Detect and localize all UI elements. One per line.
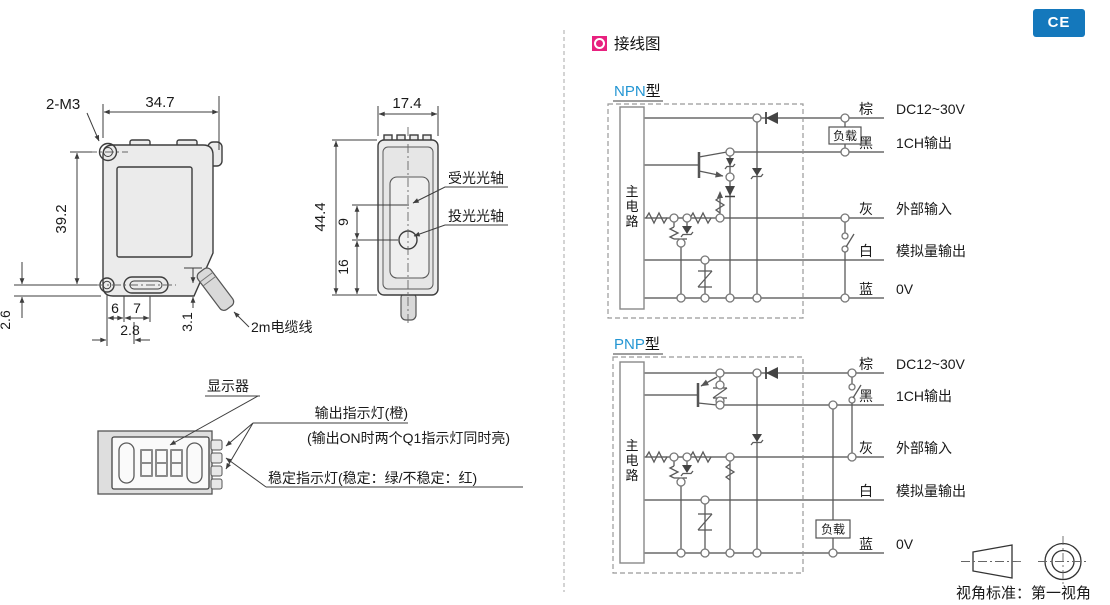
wire-color-label: 灰 — [859, 440, 873, 456]
load-label: 负载 — [833, 129, 857, 143]
wire-color-label: 黑 — [859, 135, 873, 151]
output-led-note: (输出ON时两个Q1指示灯同时亮) — [307, 430, 510, 446]
dim-axis-gap: 9 — [335, 218, 351, 226]
wire-color-label: 灰 — [859, 201, 873, 217]
wire-signal-label: DC12~30V — [896, 101, 966, 117]
wire-signal-label: 外部输入 — [896, 440, 952, 456]
zener-diode — [682, 465, 692, 473]
dim-side-height: 44.4 — [312, 202, 329, 231]
wire-color-label: 蓝 — [859, 536, 873, 552]
wire-color-label: 白 — [859, 483, 873, 499]
main-circuit-char: 路 — [625, 214, 638, 229]
dim-hole-offset: 2.6 — [0, 310, 13, 330]
npn-title: NPN型 — [614, 83, 661, 100]
zener-diode — [682, 226, 692, 234]
wiring-section-header: 接线图 — [592, 32, 661, 54]
npn-transistor — [699, 152, 727, 178]
wire-signal-label: 模拟量输出 — [896, 483, 966, 499]
wire-signal-label: 1CH输出 — [896, 135, 952, 151]
dim-slot-len: 7 — [133, 300, 141, 316]
main-circuit-char: 路 — [625, 468, 638, 483]
junction-nodes — [670, 114, 849, 302]
dim-step: 3.1 — [179, 312, 195, 332]
line-art: 34.7 2-M3 39.2 2.6 6 7 2.8 3.1 2m电缆线 — [0, 0, 1110, 605]
side-view-drawing: 17.4 44.4 9 16 受光光轴 投光光轴 — [312, 95, 508, 323]
led-tab — [211, 466, 222, 476]
dim-front-height: 39.2 — [53, 204, 70, 233]
wire-signal-label: DC12~30V — [896, 356, 966, 372]
thread-label: 2-M3 — [46, 96, 80, 113]
npn-wiring-diagram: NPN型 主 电 路 — [608, 83, 966, 318]
dim-side-width: 17.4 — [392, 95, 421, 112]
diode — [725, 186, 735, 196]
led-tab — [211, 453, 222, 463]
section-bullet-icon — [592, 36, 607, 51]
stability-led-label: 稳定指示灯(稳定：绿/不稳定：红) — [268, 470, 477, 486]
load-label: 负载 — [821, 523, 845, 537]
main-circuit-char: 电 — [625, 453, 638, 468]
zener-diode — [752, 168, 762, 176]
optical-window — [390, 177, 429, 278]
wire-signal-label: 0V — [896, 536, 914, 552]
led-tab — [211, 440, 222, 450]
pnp-wiring-diagram: PNP型 主 电 路 — [613, 336, 966, 573]
projection-symbol: 视角标准：第一视角 — [956, 536, 1091, 602]
diode — [766, 367, 778, 379]
ce-mark-badge: CE — [1033, 9, 1085, 37]
zener-diode — [752, 434, 762, 442]
wire-color-label: 蓝 — [859, 281, 873, 297]
wire-color-label: 棕 — [859, 101, 873, 117]
cable-label: 2m电缆线 — [251, 319, 312, 335]
led-tab — [211, 479, 222, 489]
resistor — [670, 227, 678, 239]
dim-slot-gap: 6 — [111, 300, 119, 316]
dim-emit-height: 16 — [335, 259, 351, 275]
dim-hole-to-slot: 2.8 — [120, 322, 140, 338]
wire-color-label: 黑 — [859, 388, 873, 404]
receive-axis-label: 受光光轴 — [448, 170, 504, 186]
main-circuit-char: 主 — [625, 438, 638, 453]
wire-signal-label: 0V — [896, 281, 914, 297]
cable — [195, 266, 235, 312]
cable-stub — [401, 293, 416, 320]
wire-color-label: 棕 — [859, 356, 873, 372]
resistor — [670, 466, 678, 478]
diode — [766, 112, 778, 124]
front-view-drawing: 34.7 2-M3 39.2 2.6 6 7 2.8 3.1 2m电缆线 — [0, 94, 312, 346]
display-view-drawing: 显示器 输出指示灯(橙) (输出ON时两个Q1指示灯同时亮) 稳定指示灯(稳定：… — [98, 378, 523, 494]
display-label: 显示器 — [207, 378, 249, 394]
main-circuit-char: 电 — [625, 199, 638, 214]
datasheet-page: 34.7 2-M3 39.2 2.6 6 7 2.8 3.1 2m电缆线 — [0, 0, 1110, 605]
switch-contact — [842, 233, 848, 239]
switch-contact — [849, 384, 855, 390]
emit-axis-label: 投光光轴 — [448, 208, 504, 224]
wire-signal-label: 模拟量输出 — [896, 243, 966, 259]
pnp-transistor — [698, 377, 717, 407]
projection-note: 视角标准：第一视角 — [956, 584, 1091, 602]
switch-contact — [849, 397, 855, 403]
switch-contact — [842, 246, 848, 252]
wire-color-label: 白 — [859, 243, 873, 259]
zener-diode — [726, 158, 734, 166]
dim-front-width: 34.7 — [145, 94, 174, 111]
main-circuit-char: 主 — [625, 184, 638, 199]
section-title: 接线图 — [614, 32, 661, 54]
output-led-label: 输出指示灯(橙) — [315, 405, 408, 421]
wire-signal-label: 1CH输出 — [896, 388, 952, 404]
pnp-title: PNP型 — [614, 336, 660, 353]
wire-signal-label: 外部输入 — [896, 201, 952, 217]
